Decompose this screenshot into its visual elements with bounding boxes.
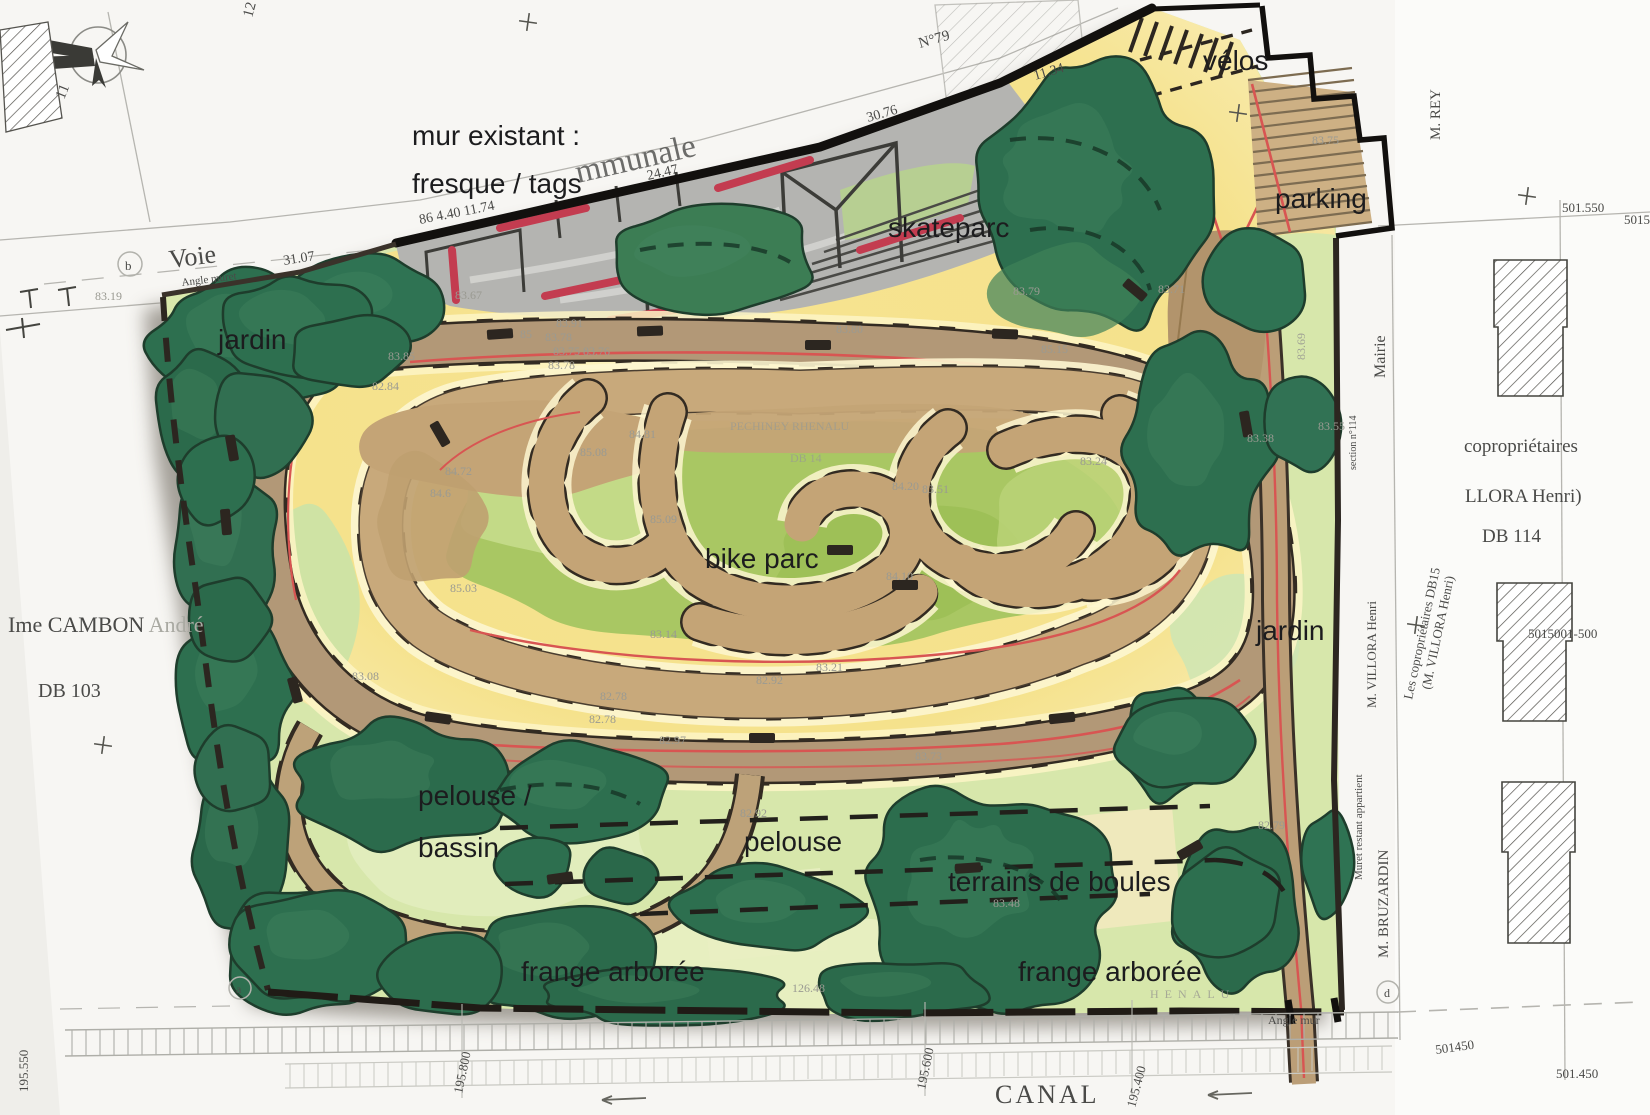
svg-text:85.09: 85.09 xyxy=(650,512,677,526)
svg-text:terrains de boules: terrains de boules xyxy=(948,866,1171,897)
svg-text:83.55: 83.55 xyxy=(1318,419,1345,433)
svg-text:83.38: 83.38 xyxy=(1247,431,1274,445)
svg-text:pelouse: pelouse xyxy=(744,826,842,857)
svg-text:82.92: 82.92 xyxy=(740,806,767,820)
svg-text:skateparc: skateparc xyxy=(888,212,1009,243)
svg-text:83.14: 83.14 xyxy=(650,627,677,641)
svg-text:mur existant :: mur existant : xyxy=(412,120,580,151)
svg-text:jardin: jardin xyxy=(1255,615,1324,646)
svg-text:jardin: jardin xyxy=(217,324,286,355)
svg-text:126.48: 126.48 xyxy=(792,981,825,995)
svg-text:83.08: 83.08 xyxy=(352,669,379,683)
svg-text:DB 14: DB 14 xyxy=(790,451,822,465)
svg-text:82.84: 82.84 xyxy=(372,379,399,393)
svg-text:84.20: 84.20 xyxy=(892,479,919,493)
svg-text:5015001-500: 5015001-500 xyxy=(1528,626,1597,641)
svg-text:82.92: 82.92 xyxy=(756,673,783,687)
svg-text:501.450: 501.450 xyxy=(1556,1066,1598,1081)
svg-text:DB 103: DB 103 xyxy=(38,680,101,702)
svg-text:85.15: 85.15 xyxy=(1041,342,1068,356)
svg-text:83.48: 83.48 xyxy=(993,896,1020,910)
svg-text:copropriétaires: copropriétaires xyxy=(1464,436,1578,457)
svg-text:84.10: 84.10 xyxy=(886,569,913,583)
svg-text:Ime CAMBON André: Ime CAMBON André xyxy=(8,612,204,637)
svg-text:84.81: 84.81 xyxy=(629,427,656,441)
svg-text:82.79: 82.79 xyxy=(1258,818,1285,832)
svg-text:frange arborée: frange arborée xyxy=(521,956,705,987)
svg-text:DB 114: DB 114 xyxy=(1482,526,1541,547)
svg-text:83.78: 83.78 xyxy=(545,330,572,344)
svg-text:83.67: 83.67 xyxy=(455,288,482,302)
svg-text:83.21: 83.21 xyxy=(816,660,843,674)
svg-text:vélos: vélos xyxy=(1203,45,1268,76)
svg-text:83.71: 83.71 xyxy=(1158,282,1185,296)
svg-text:CANAL: CANAL xyxy=(995,1080,1100,1109)
svg-text:LLORA Henri): LLORA Henri) xyxy=(1465,486,1582,507)
svg-text:82.97: 82.97 xyxy=(659,733,686,747)
svg-text:bassin: bassin xyxy=(418,832,499,863)
svg-text:83.69: 83.69 xyxy=(1294,333,1308,360)
svg-text:501.550: 501.550 xyxy=(1562,200,1604,215)
svg-text:83.80: 83.80 xyxy=(836,322,863,336)
svg-text:83.24: 83.24 xyxy=(1080,454,1107,468)
svg-text:HENALU: HENALU xyxy=(1150,987,1235,1001)
svg-text:b: b xyxy=(125,258,132,273)
svg-text:83.91: 83.91 xyxy=(556,316,583,330)
svg-text:Angle mur: Angle mur xyxy=(1268,1013,1320,1027)
svg-text:83.75: 83.75 xyxy=(1312,133,1339,147)
svg-text:83.79: 83.79 xyxy=(1013,284,1040,298)
svg-text:83.75 83.76: 83.75 83.76 xyxy=(553,344,610,358)
svg-text:85.08: 85.08 xyxy=(580,445,607,459)
svg-text:82.78: 82.78 xyxy=(600,689,627,703)
svg-text:84.72: 84.72 xyxy=(445,464,472,478)
svg-text:d: d xyxy=(1384,986,1390,1000)
svg-text:83.73: 83.73 xyxy=(915,749,942,763)
svg-text:5015: 5015 xyxy=(1624,212,1650,227)
svg-text:pelouse /: pelouse / xyxy=(418,780,532,811)
svg-text:82.78: 82.78 xyxy=(589,712,616,726)
svg-text:Mairie: Mairie xyxy=(1372,335,1389,378)
svg-text:85.03: 85.03 xyxy=(450,581,477,595)
svg-text:83.85: 83.85 xyxy=(388,349,415,363)
svg-text:a: a xyxy=(236,982,242,996)
svg-text:frange arborée: frange arborée xyxy=(1018,956,1202,987)
svg-text:parking: parking xyxy=(1275,183,1367,214)
svg-text:PECHINEY RHENALU: PECHINEY RHENALU xyxy=(730,419,850,433)
svg-text:M. REY: M. REY xyxy=(1428,89,1444,140)
svg-text:84.6: 84.6 xyxy=(430,486,451,500)
svg-text:M. BRUZARDIN: M. BRUZARDIN xyxy=(1376,849,1392,958)
svg-text:83.51: 83.51 xyxy=(922,482,949,496)
svg-text:fresque / tags: fresque / tags xyxy=(412,168,582,199)
svg-text:83.78: 83.78 xyxy=(548,358,575,372)
svg-text:Voie: Voie xyxy=(167,239,217,274)
svg-text:85: 85 xyxy=(520,327,532,341)
svg-text:195.550: 195.550 xyxy=(16,1050,31,1092)
svg-text:bike parc: bike parc xyxy=(705,543,819,574)
svg-text:83.19: 83.19 xyxy=(95,289,122,303)
svg-text:section n°114: section n°114 xyxy=(1348,416,1359,470)
svg-text:Muret restant appartient: Muret restant appartient xyxy=(1353,774,1365,880)
svg-text:M. VILLORA Henri: M. VILLORA Henri xyxy=(1364,601,1379,708)
